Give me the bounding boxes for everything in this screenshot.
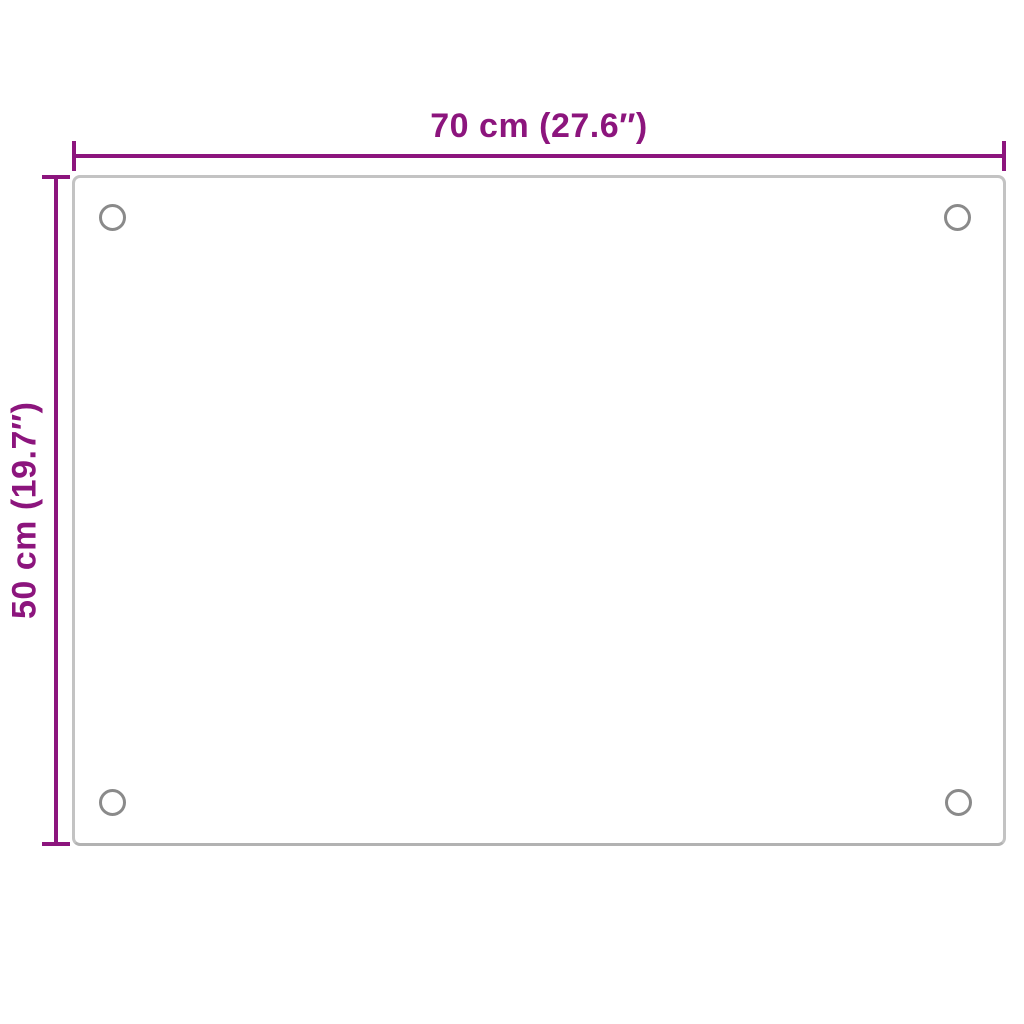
mounting-hole-top-left (99, 204, 126, 231)
product-dimension-diagram: 70 cm (27.6″) 50 cm (19.7″) (0, 0, 1024, 1024)
glass-panel (72, 175, 1006, 846)
mounting-hole-bottom-left (99, 789, 126, 816)
height-dimension-line (54, 175, 58, 846)
dimension-end-tick-left (72, 141, 76, 171)
dimension-end-tick-right (1002, 141, 1006, 171)
mounting-hole-top-right (944, 204, 971, 231)
dimension-end-tick-top (42, 175, 70, 179)
height-dimension-label: 50 cm (19.7″) (2, 175, 48, 846)
width-dimension-label: 70 cm (27.6″) (72, 104, 1006, 148)
mounting-hole-bottom-right (945, 789, 972, 816)
width-dimension-line (72, 154, 1006, 158)
dimension-end-tick-bottom (42, 842, 70, 846)
